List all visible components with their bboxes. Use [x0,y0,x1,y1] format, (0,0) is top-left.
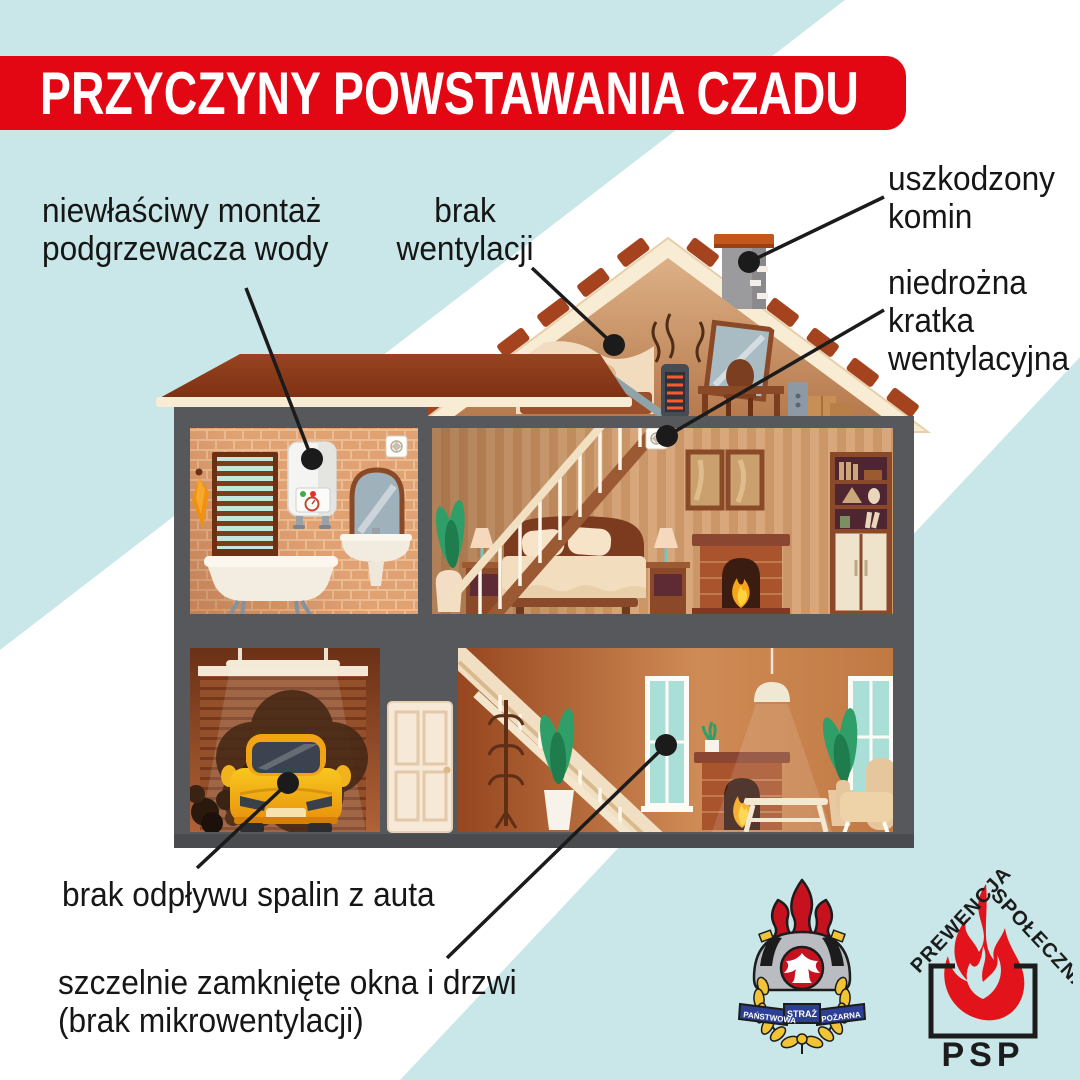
label-damaged-chimney: uszkodzony komin [888,160,1055,236]
label-closed-windows: szczelnie zamknięte okna i drzwi (brak m… [58,964,517,1040]
page-title: PRZYCZYNY POWSTAWANIA CZADU [40,58,859,128]
label-blocked-grille: niedrożna kratka wentylacyjna [888,264,1069,378]
garage [187,648,380,834]
annex-roof [156,354,632,407]
living-room [452,648,896,864]
crest-ribbon: PAŃSTWOWA STRAŻ POŻARNA [739,1004,865,1025]
label-water-heater: niewłaściwy montaż podgrzewacza wody [42,192,328,268]
marker-dot-water-heater [301,448,323,470]
shelf-unit [830,452,892,614]
bedroom [432,418,893,632]
marker-dot-damaged-chimney [738,251,760,273]
attic-pc-tower [788,382,808,418]
prevention-psp-logo: PREWENCJA SPOŁECZNA PSP [893,870,1073,1070]
prevention-text-psp: PSP [941,1036,1024,1070]
marker-dot-closed-windows [655,734,677,756]
psp-crest-logo: PAŃSTWOWA STRAŻ POŻARNA [732,876,872,1066]
bedroom-fireplace [692,534,790,614]
marker-dot-no-ventilation [603,334,625,356]
infographic-poster: PRZYCZYNY POWSTAWANIA CZADU niewłaściwy … [0,0,1080,1080]
electric-heater [661,364,689,418]
hall-door [388,702,452,832]
crest-ribbon-center-text: STRAŻ [787,1009,817,1019]
label-car-exhaust: brak odpływu spalin z auta [62,876,435,914]
label-no-ventilation: brak wentylacji [386,192,544,268]
title-banner: PRZYCZYNY POWSTAWANIA CZADU [0,56,906,130]
crest-eagle-disc [781,947,823,989]
crest-flames [772,880,832,938]
vent-grille-icon [386,436,407,457]
marker-dot-blocked-grille [656,425,678,447]
marker-dot-car-exhaust [277,772,299,794]
bathroom-window-blinds [212,452,278,556]
